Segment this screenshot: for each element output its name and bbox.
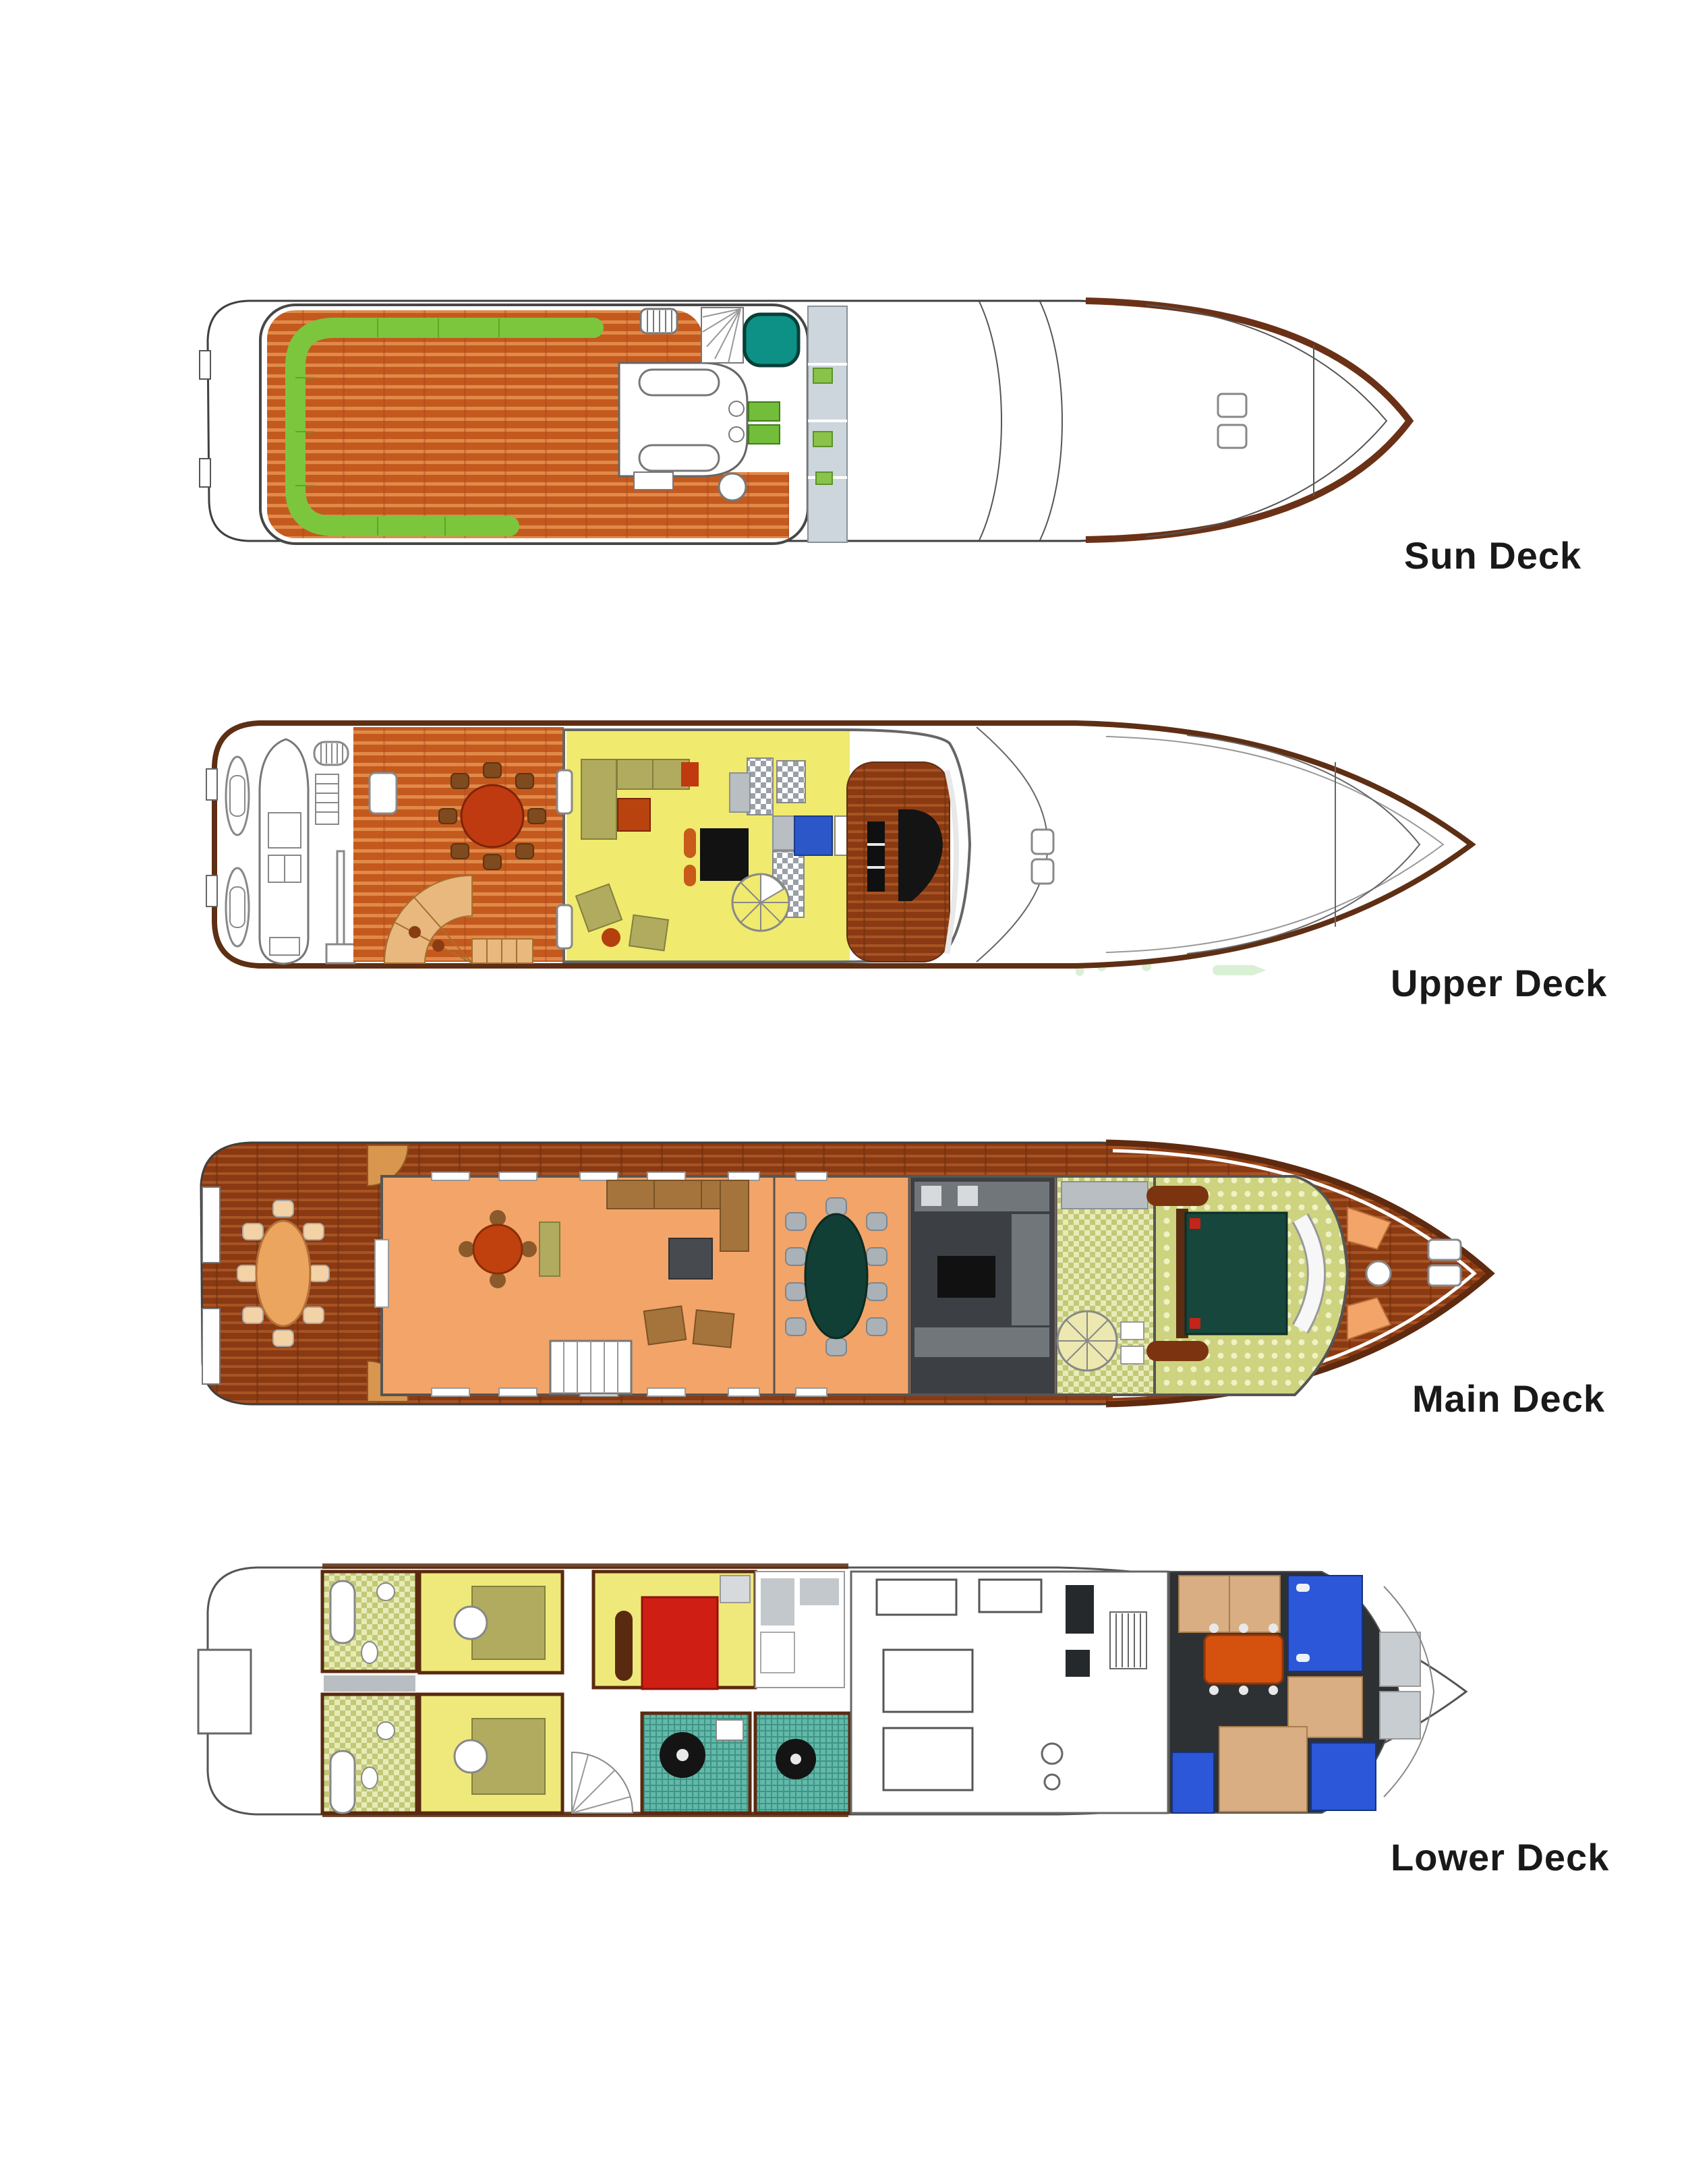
sink: [716, 1720, 743, 1740]
switchboard: [1066, 1585, 1094, 1634]
wheelhouse: [847, 762, 956, 962]
guest-cabin: [419, 1572, 562, 1673]
crew-head: [1380, 1692, 1420, 1739]
dresser: [615, 1611, 633, 1681]
toilet: [361, 1767, 378, 1789]
deck-hatch: [1428, 1240, 1461, 1260]
capstan: [1366, 1261, 1391, 1286]
dresser: [1146, 1186, 1209, 1206]
crew-bunk: [1219, 1727, 1307, 1812]
lower-deck-plan: [196, 1551, 1490, 1835]
dining-table: [805, 1214, 867, 1338]
crew-bed-blue: [1172, 1752, 1214, 1813]
fan-stairs: [701, 308, 743, 363]
engine: [883, 1728, 972, 1790]
mosaic-floor: [777, 761, 805, 803]
guest-bathroom: [755, 1713, 850, 1813]
pillow: [455, 1740, 487, 1773]
sun-deck-plan: [189, 280, 1436, 550]
main-deck-plan: [189, 1126, 1504, 1423]
landing: [324, 1675, 415, 1692]
bathtub: [330, 1581, 355, 1643]
machinery: [877, 1580, 956, 1615]
tv-cabinet: [700, 828, 749, 881]
vip-bathroom: [642, 1713, 750, 1813]
master-bed: [1186, 1213, 1287, 1334]
vip-cabin: [593, 1572, 755, 1689]
pillow: [455, 1607, 487, 1639]
plant: [813, 432, 832, 447]
bathtub: [330, 1751, 355, 1813]
ladder: [1110, 1612, 1146, 1669]
sun-deck-label: Sun Deck: [1404, 537, 1581, 575]
red-accent: [681, 762, 699, 786]
machinery: [979, 1580, 1041, 1612]
cabinet: [540, 1222, 560, 1276]
coffee-table: [669, 1238, 712, 1279]
crew-mess-table: [1204, 1623, 1283, 1695]
crew-quarters: [1169, 1572, 1420, 1813]
cabinet: [684, 865, 696, 886]
pillow: [1190, 1218, 1200, 1229]
card-table: [473, 1225, 522, 1273]
stern-step: [200, 351, 210, 379]
crew-bed-blue: [1311, 1743, 1376, 1810]
salon-entry: [375, 1240, 388, 1307]
upper-deck-plan: [196, 705, 1490, 988]
cabinet: [730, 773, 750, 812]
helm-console: [619, 363, 747, 490]
main-deck-label: Main Deck: [1412, 1380, 1605, 1418]
deck-hatch: [1428, 1265, 1461, 1286]
tender-boat: [260, 739, 308, 964]
closet: [720, 1576, 750, 1603]
stern-step: [206, 769, 217, 800]
coffee-table: [618, 799, 650, 831]
master-cabin: [1146, 1176, 1347, 1395]
salon-door: [557, 905, 572, 948]
plant: [813, 368, 832, 383]
crew-head: [1380, 1632, 1420, 1686]
deck-door: [370, 773, 397, 813]
sink: [377, 1722, 395, 1740]
lower-deck-label: Lower Deck: [1391, 1839, 1609, 1876]
deck-vent: [641, 309, 677, 333]
cabinet: [684, 828, 696, 858]
range: [937, 1256, 995, 1298]
helm-console: [867, 822, 885, 892]
steps: [316, 774, 339, 824]
kayak: [226, 757, 249, 835]
armchair: [693, 1310, 734, 1348]
engine-room: [851, 1572, 1168, 1813]
aft-bathroom: [322, 1694, 417, 1813]
galley: [910, 1178, 1055, 1393]
side-table: [602, 928, 620, 947]
deck-hatch: [1218, 425, 1246, 448]
armchair: [629, 915, 668, 951]
guest-cabin: [419, 1694, 562, 1813]
deck-hatch: [1218, 394, 1246, 417]
aft-bathroom: [322, 1572, 417, 1671]
mosaic-floor: [747, 758, 773, 815]
armchair: [644, 1306, 686, 1344]
stairs-down: [550, 1341, 631, 1393]
cocktail-table: [719, 473, 746, 500]
cabinet: [773, 816, 794, 850]
stern-step: [200, 459, 210, 487]
upper-deck-label: Upper Deck: [1391, 965, 1607, 1002]
switchboard: [1066, 1650, 1090, 1677]
pillow: [1190, 1318, 1200, 1329]
sink: [377, 1583, 395, 1601]
sofa: [720, 1180, 749, 1251]
stern-step: [206, 875, 217, 907]
cabin-wall: [322, 1563, 848, 1569]
vip-bed: [642, 1597, 718, 1689]
day-bed: [794, 816, 832, 855]
deck-hatch: [1032, 859, 1053, 884]
salon-door: [557, 770, 572, 813]
deck-plans-page: { "page_title": "Yacht deck plans", "dec…: [0, 0, 1686, 2184]
kayak: [226, 868, 249, 946]
pantry-lobby: [1057, 1178, 1153, 1393]
plant: [816, 472, 832, 484]
deck-vent: [314, 742, 348, 765]
deck-hatch: [1032, 830, 1053, 854]
toilet: [361, 1642, 378, 1663]
midship-lobby: [755, 1572, 844, 1688]
engine: [883, 1650, 972, 1712]
swim-platform: [198, 1650, 251, 1733]
jacuzzi: [745, 314, 798, 366]
windshield-band: [808, 306, 847, 542]
dresser: [1146, 1341, 1209, 1361]
spiral-staircase: [732, 874, 789, 931]
